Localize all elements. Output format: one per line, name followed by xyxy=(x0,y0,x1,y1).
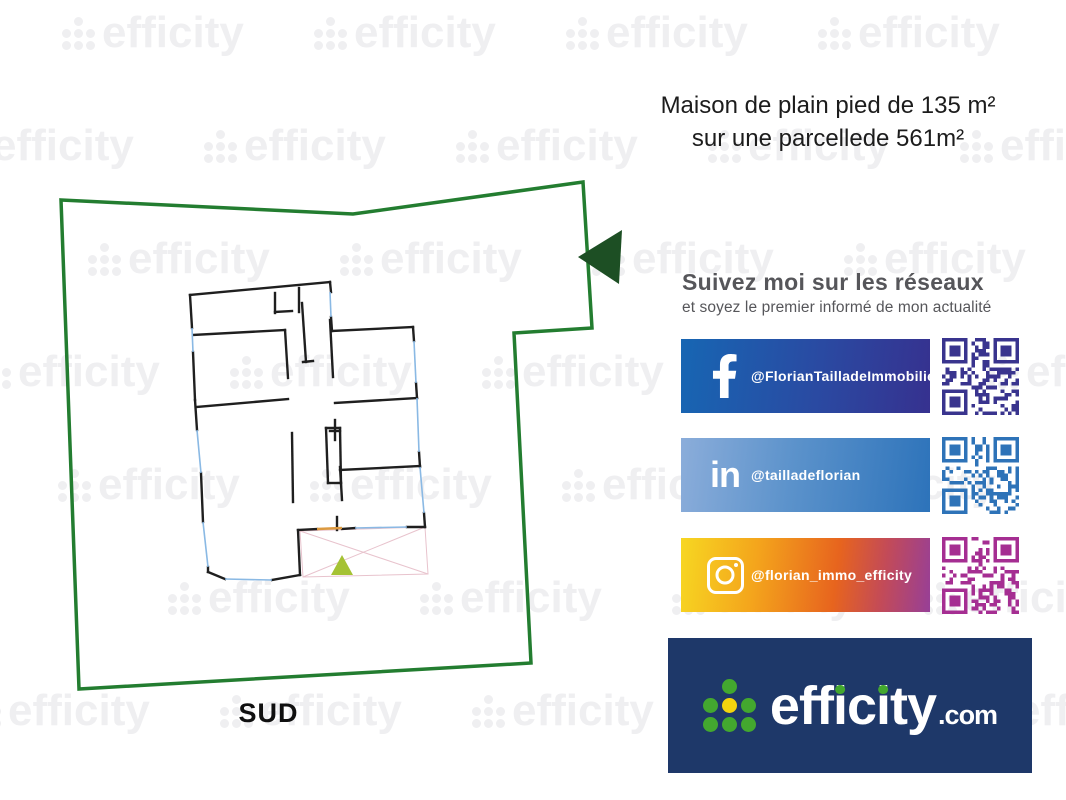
south-label: SUD xyxy=(196,698,341,729)
efficity-watermark: efficity xyxy=(420,573,602,623)
efficity-watermark: efficity xyxy=(62,8,244,58)
social-heading: Suivez moi sur les réseaux xyxy=(682,269,991,296)
efficity-watermark: efficity xyxy=(0,121,134,171)
efficity-watermark: efficity xyxy=(818,8,1000,58)
linkedin-in-icon: in xyxy=(701,461,749,490)
efficity-watermark: efficity xyxy=(566,8,748,58)
efficity-watermark: efficity xyxy=(310,460,492,510)
efficity-watermark: efficity xyxy=(482,347,664,397)
efficity-watermark: efficity xyxy=(88,234,270,284)
logo-suffix: .com xyxy=(938,702,997,729)
efficity-watermark: efficity xyxy=(456,121,638,171)
efficity-dots-icon xyxy=(703,679,756,732)
efficity-watermark: efficity xyxy=(314,8,496,58)
efficity-watermark: efficity xyxy=(58,460,240,510)
facebook-banner: @FlorianTailladeImmobilier xyxy=(681,339,930,413)
facebook-handle: @FlorianTailladeImmobilier xyxy=(751,368,941,384)
efficity-watermark: efficity xyxy=(230,347,412,397)
instagram-camera-icon xyxy=(701,557,749,594)
efficity-watermark: efficity xyxy=(168,573,350,623)
instagram-handle: @florian_immo_efficity xyxy=(751,567,912,583)
efficity-watermark: efficity xyxy=(340,234,522,284)
efficity-watermark: efficity xyxy=(472,686,654,736)
facebook-qr-code-icon xyxy=(942,338,1019,415)
social-header: Suivez moi sur les réseaux et soyez le p… xyxy=(682,269,991,317)
title-line1: Maison de plain pied de 135 m² xyxy=(637,90,1019,123)
social-subheading: et soyez le premier informé de mon actua… xyxy=(682,299,991,317)
linkedin-handle: @tailladeflorian xyxy=(751,467,860,483)
instagram-qr-code-icon xyxy=(942,537,1019,614)
real-estate-flyer: efficityefficityefficityefficityefficity… xyxy=(0,0,1066,800)
efficity-watermark: efficity xyxy=(204,121,386,171)
efficity-logo-text: efficity.com xyxy=(770,679,997,733)
linkedin-qr-code-icon xyxy=(942,437,1019,514)
efficity-watermark: efficity xyxy=(0,347,160,397)
facebook-f-icon xyxy=(701,354,749,398)
efficity-logo: efficity.com xyxy=(668,638,1032,773)
instagram-banner: @florian_immo_efficity xyxy=(681,538,930,612)
page-title: Maison de plain pied de 135 m² sur une p… xyxy=(637,90,1019,155)
linkedin-banner: in@tailladeflorian xyxy=(681,438,930,512)
efficity-watermark: efficity xyxy=(0,686,150,736)
title-line2: sur une parcellede 561m² xyxy=(637,123,1019,156)
